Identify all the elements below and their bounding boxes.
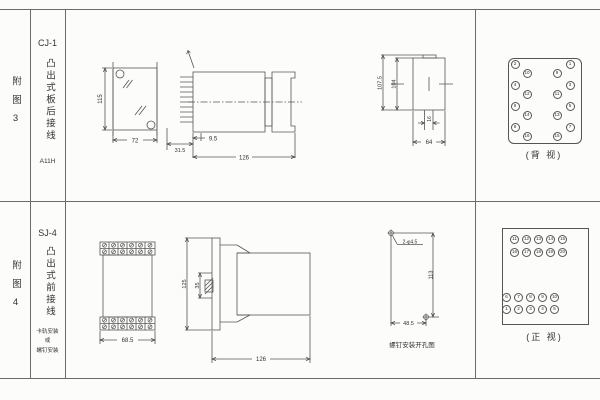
terminal-pin: 12 <box>523 90 532 99</box>
dim-label-width-72: 72 <box>132 139 139 145</box>
dim-label-31-5: 31.5 <box>175 148 186 154</box>
mounting-hole-drawing: 2-φ4.5 113 48.5 螺钉安装开孔图 <box>380 225 470 357</box>
terminal-screws <box>103 243 153 329</box>
terminal-pin: 17 <box>522 248 531 257</box>
hole-spec-label: 2-φ4.5 <box>403 239 418 245</box>
terminal-pin: 15 <box>558 235 567 244</box>
dim-label-64: 64 <box>426 140 433 146</box>
terminal-pin: 16 <box>510 248 519 257</box>
dim-label-125: 125 <box>182 279 188 288</box>
dim-label-126-bottom: 126 <box>256 357 267 363</box>
terminal-pin: 9 <box>538 293 547 302</box>
figure-index-4: 附图4 <box>8 260 22 317</box>
front-view-caption: (正 视) <box>495 330 594 343</box>
terminal-pin: 7 <box>514 293 523 302</box>
dim-label-113: 113 <box>429 271 435 280</box>
terminal-pin: 15 <box>553 132 562 141</box>
mount-note-line-2: 或 <box>28 337 67 346</box>
code-label-a11h: A11H <box>30 158 65 165</box>
grid-top-line <box>0 9 600 10</box>
terminal-pin: 4 <box>511 81 520 90</box>
terminal-pin: 5 <box>550 305 559 314</box>
terminal-pin: 12 <box>522 235 531 244</box>
grid-vline-3 <box>475 9 476 379</box>
terminal-pin: 2 <box>511 60 520 69</box>
terminal-pin: 6 <box>511 102 520 111</box>
dim-label-9-5: 9.5 <box>209 136 218 142</box>
cutout-geometry <box>381 55 453 146</box>
terminal-front-view: 11 12 13 14 15 16 17 18 19 20 6 7 8 9 10… <box>495 222 595 352</box>
mount-note-line-1: 卡轨安装 <box>28 328 67 337</box>
dim-label-107-5: 107.5 <box>378 76 384 90</box>
dim-label-48-5: 48.5 <box>403 321 414 327</box>
terminal-pin: 7 <box>566 123 575 132</box>
terminal-pin: 18 <box>534 248 543 257</box>
terminal-pin: 14 <box>523 111 532 120</box>
terminal-pin: 8 <box>511 123 520 132</box>
side-view-geometry <box>167 51 295 159</box>
side-view-drawing-sj4: 125 35 126 <box>180 230 320 370</box>
terminal-pin: 10 <box>523 69 532 78</box>
drawing-sheet: 附图3 CJ-1 凸出式板后接线 A11H 115 72 <box>0 0 600 400</box>
terminal-pin: 20 <box>558 248 567 257</box>
side-view-drawing-cj1: 31.5 9.5 126 <box>160 20 355 168</box>
terminal-pin: 13 <box>553 111 562 120</box>
terminal-pin: 1 <box>566 60 575 69</box>
model-label-cj1: CJ-1 <box>30 38 65 48</box>
dim-label-35: 35 <box>195 282 201 288</box>
front-view-drawing-sj4: 68.5 <box>95 235 170 347</box>
terminal-pin: 6 <box>502 293 511 302</box>
terminal-back-view: 2 4 6 8 10 12 14 16 9 11 13 15 1 3 5 7 (… <box>500 50 595 165</box>
dim-label-16: 16 <box>427 116 433 122</box>
wiring-type-label-1: 凸出式板后接线 <box>42 58 56 142</box>
terminal-pin: 11 <box>553 90 562 99</box>
model-label-sj4: SJ-4 <box>30 228 65 238</box>
terminal-pin: 11 <box>510 235 519 244</box>
back-view-caption: (背 视) <box>500 148 588 161</box>
terminal-pin: 13 <box>534 235 543 244</box>
terminal-pin: 3 <box>566 81 575 90</box>
terminal-pin: 9 <box>553 69 562 78</box>
dim-label-height-115: 115 <box>98 94 104 104</box>
grid-middle-line <box>0 201 600 202</box>
figure-index-3: 附图3 <box>8 76 22 133</box>
grid-vline-1 <box>30 9 31 379</box>
side-view-sj4-geometry <box>185 238 310 363</box>
mount-note: 卡轨安装 或 螺钉安装 <box>28 328 67 356</box>
dim-label-104: 104 <box>392 79 398 88</box>
terminal-pin: 1 <box>502 305 511 314</box>
terminal-pin: 16 <box>523 132 532 141</box>
terminal-pin: 14 <box>546 235 555 244</box>
terminal-pin: 10 <box>550 293 559 302</box>
front-view-geometry <box>100 242 155 344</box>
terminal-pin: 4 <box>538 305 547 314</box>
terminal-pin: 5 <box>566 102 575 111</box>
terminal-pin: 3 <box>526 305 535 314</box>
grid-bottom-line <box>0 378 600 379</box>
grid-vline-2 <box>65 9 66 379</box>
hole-drawing-caption: 螺钉安装开孔图 <box>389 340 435 349</box>
terminal-pin: 2 <box>514 305 523 314</box>
cutout-view-drawing: 107.5 104 16 64 <box>375 45 470 157</box>
dim-label-68-5: 68.5 <box>122 338 134 344</box>
mount-note-line-3: 螺钉安装 <box>28 347 67 356</box>
wiring-type-label-2: 凸出式前接线 <box>42 246 56 318</box>
terminal-pin: 8 <box>526 293 535 302</box>
panel-rear-geometry <box>102 62 157 143</box>
terminal-pin: 19 <box>546 248 555 257</box>
dim-label-126-top: 126 <box>239 155 250 161</box>
